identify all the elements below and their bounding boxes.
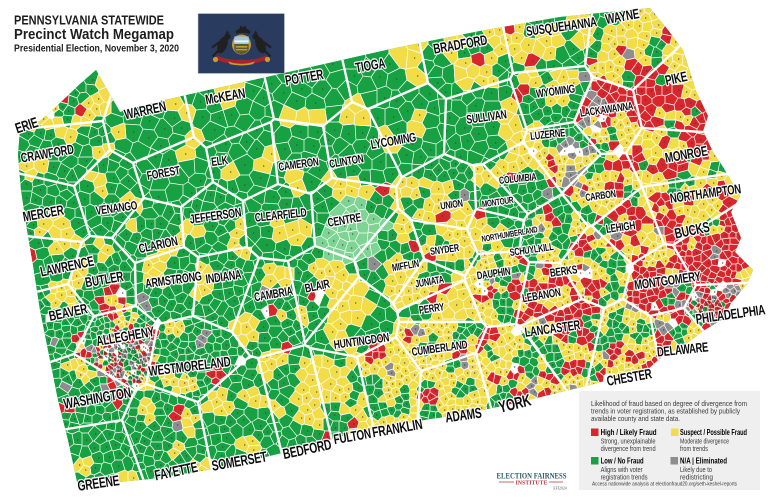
svg-text:redistricting: redistricting: [680, 472, 713, 481]
svg-text:INSTITUTE: INSTITUTE: [516, 480, 548, 487]
svg-text:PENNSYLVANIA STATEWIDE: PENNSYLVANIA STATEWIDE: [14, 14, 164, 28]
svg-text:EFI2024: EFI2024: [553, 487, 566, 491]
svg-text:divergence from trend: divergence from trend: [601, 444, 656, 453]
svg-text:from trends: from trends: [680, 444, 708, 453]
svg-text:ELK: ELK: [210, 153, 229, 169]
svg-text:Precinct Watch Megamap: Precinct Watch Megamap: [14, 27, 174, 43]
svg-text:registration trends: registration trends: [601, 472, 648, 481]
svg-text:Access nationwide analysis at: Access nationwide analysis at electionfr…: [592, 482, 737, 488]
svg-text:available county and state dat: available county and state data.: [591, 414, 680, 423]
svg-text:Presidential Election, Novembe: Presidential Election, November 3, 2020: [14, 43, 179, 54]
